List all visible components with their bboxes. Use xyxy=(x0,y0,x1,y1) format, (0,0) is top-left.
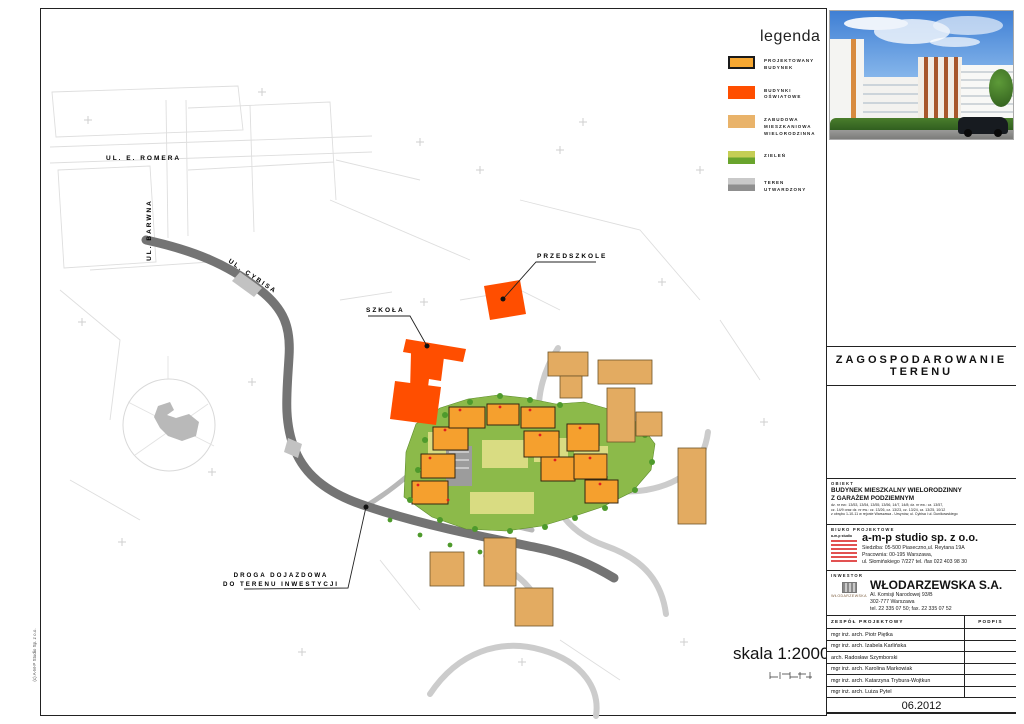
copyright-text: (c) A-M-P Studio Sp. z o.o. xyxy=(32,628,37,681)
drawing-title-line2: TERENU xyxy=(890,366,953,378)
wlodarzewska-logo: WŁODARZEWSKA xyxy=(831,582,867,598)
site-rendering-image xyxy=(829,10,1014,140)
team-member-name: mgr inż. arch. Katarzyna Trybura-Wojtkun xyxy=(827,675,964,686)
team-member-row: mgr inż. arch. Izabela Karlińska xyxy=(827,641,1016,653)
investor-contact: tel. 22 335 07 50; fax. 22 335 07 52 xyxy=(870,606,1002,613)
wlodarzewska-logo-glyph xyxy=(842,582,857,593)
access-road-label-line1: DROGA DOJAZDOWA xyxy=(234,572,329,579)
wlodarzewska-logo-text: WŁODARZEWSKA xyxy=(831,594,867,598)
greenery-swatch xyxy=(728,151,755,164)
team-table-header: ZESPÓŁ PROJEKTOWY PODPIS xyxy=(827,615,1016,629)
legend-title: legenda xyxy=(760,28,826,46)
team-member-row: mgr inż. arch. Karolina Markowiak xyxy=(827,664,1016,676)
object-name: Z GARAŻEM PODZIEMNYM xyxy=(831,495,1012,503)
legend-item-paved-area: TEREN UTWARDZONY xyxy=(728,178,826,194)
design-office-section: BIURO PROJEKTOWE a-m-p studio a-m-p stud… xyxy=(827,524,1016,570)
design-office-address: Pracownia: 00-195 Warszawa, xyxy=(862,552,978,559)
amp-studio-logo: a-m-p studio xyxy=(831,534,858,562)
date-field: 06.2012 xyxy=(827,698,1016,714)
legend-item-greenery: ZIELEŃ xyxy=(728,151,826,164)
amp-logo-stamp xyxy=(831,538,857,562)
legend-item-projected-building: PROJEKTOWANY BUDYNEK xyxy=(728,56,826,72)
object-plot-details: z obrębu 1-10-11 w rejonie Warszawa - Ur… xyxy=(831,512,1012,517)
team-member-row: mgr inż. arch. Luiza Pytel xyxy=(827,687,1016,699)
team-member-name: arch. Radosław Szymborski xyxy=(827,652,964,663)
legend-item-label: ZIELEŃ xyxy=(764,151,786,160)
street-label-romera: UL. E. ROMERA xyxy=(106,155,181,162)
investor-name: WŁODARZEWSKA S.A. xyxy=(870,579,1002,592)
object-section-label: OBIEKT xyxy=(831,481,1012,486)
legend: legenda PROJEKTOWANY BUDYNEK BUDYNKI OŚW… xyxy=(728,28,826,208)
kindergarten-label: PRZEDSZKOLE xyxy=(537,253,607,260)
projected-building-swatch xyxy=(728,56,755,69)
design-office-contact: ul. Słomińskiego 7/227 tel. /fax 022 403… xyxy=(862,559,978,566)
team-member-name: mgr inż. arch. Karolina Markowiak xyxy=(827,664,964,675)
signature-cell xyxy=(964,664,1016,675)
scale-text: skala 1:2000 xyxy=(733,644,829,663)
drawing-title-line1: ZAGOSPODAROWANIE xyxy=(836,354,1007,366)
signature-cell xyxy=(964,652,1016,663)
legend-item-education-buildings: BUDYNKI OŚWIATOWE xyxy=(728,86,826,102)
team-member-name: mgr inż. arch. Luiza Pytel xyxy=(827,687,964,698)
rendering-building xyxy=(830,39,864,127)
team-header-label: ZESPÓŁ PROJEKTOWY xyxy=(827,616,964,628)
design-office-address: Siedziba: 05-500 Piaseczno,ul. Reytana 1… xyxy=(862,545,978,552)
signature-header-label: PODPIS xyxy=(964,616,1016,628)
rendering-tree xyxy=(989,69,1013,107)
legend-item-existing-housing: ZABUDOWA MIESZKANIOWA WIELORODZINNA xyxy=(728,115,826,137)
education-buildings-swatch xyxy=(728,86,755,99)
rendering-building xyxy=(918,57,962,127)
team-member-row: mgr inż. arch. Katarzyna Trybura-Wojtkun xyxy=(827,675,1016,687)
signature-cell xyxy=(964,629,1016,640)
signature-cell xyxy=(964,641,1016,652)
object-name: BUDYNEK MIESZKALNY WIELORODZINNY xyxy=(831,487,1012,495)
investor-address: Al. Komisji Narodowej 93/B xyxy=(870,592,1002,599)
car-wheel xyxy=(994,129,1002,137)
design-office-name: a-m-p studio sp. z o.o. xyxy=(862,533,978,545)
panel-spacer xyxy=(827,386,1016,478)
rendering-car xyxy=(958,117,1008,134)
school-building-block xyxy=(390,381,441,425)
team-member-row: mgr inż. arch. Piotr Piętka xyxy=(827,629,1016,641)
legend-item-label: PROJEKTOWANY BUDYNEK xyxy=(764,56,826,72)
scale-bar xyxy=(770,672,812,679)
legend-item-label: TEREN UTWARDZONY xyxy=(764,178,826,194)
paved-area-swatch xyxy=(728,178,755,191)
team-member-row: arch. Radosław Szymborski xyxy=(827,652,1016,664)
signature-cell xyxy=(964,675,1016,686)
legend-item-label: BUDYNKI OŚWIATOWE xyxy=(764,86,826,102)
access-road-label-line2: DO TERENU INWESTYCJI xyxy=(223,581,339,588)
school-label: SZKOŁA xyxy=(366,307,405,314)
legend-item-label: ZABUDOWA MIESZKANIOWA WIELORODZINNA xyxy=(764,115,826,137)
rendering-cloud xyxy=(844,17,908,30)
panel-spacer xyxy=(827,142,1016,346)
drawing-sheet: UL. E. ROMERA UL. BARWNA UL. CYBISA SZKO… xyxy=(0,0,1024,724)
investor-section: INWESTOR WŁODARZEWSKA WŁODARZEWSKA S.A. … xyxy=(827,570,1016,615)
site-location-blob xyxy=(154,402,199,441)
rendering-cloud xyxy=(930,37,980,47)
team-member-name: mgr inż. arch. Piotr Piętka xyxy=(827,629,964,640)
existing-housing-swatch xyxy=(728,115,755,128)
drawing-title: ZAGOSPODAROWANIE TERENU xyxy=(827,346,1016,386)
street-label-barwna: UL. BARWNA xyxy=(146,199,153,261)
vicinity-circle xyxy=(123,356,215,471)
title-block-panel: ZAGOSPODAROWANIE TERENU OBIEKT BUDYNEK M… xyxy=(826,8,1016,716)
car-wheel xyxy=(964,129,972,137)
object-section: OBIEKT BUDYNEK MIESZKALNY WIELORODZINNY … xyxy=(827,478,1016,524)
team-member-name: mgr inż. arch. Izabela Karlińska xyxy=(827,641,964,652)
signature-cell xyxy=(964,687,1016,698)
investor-address: 302-777 Warszawa xyxy=(870,599,1002,606)
